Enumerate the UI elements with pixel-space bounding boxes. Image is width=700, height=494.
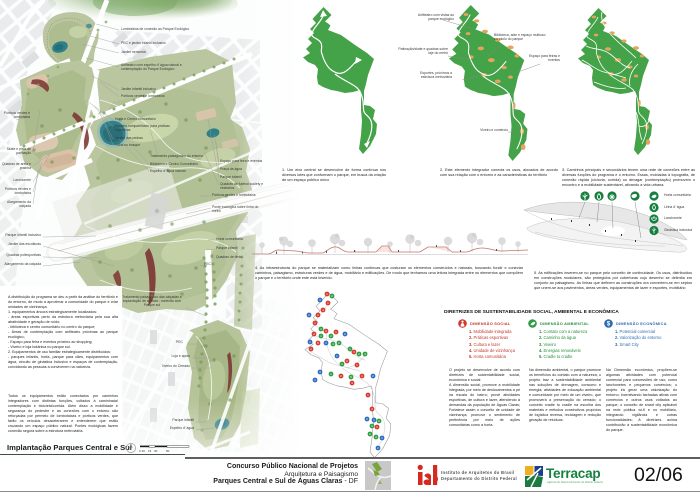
svg-text:30: 30 [154, 449, 158, 453]
svg-text:15: 15 [148, 449, 152, 453]
svg-text:50: 50 [166, 449, 170, 453]
svg-text:0 10: 0 10 [139, 449, 145, 453]
